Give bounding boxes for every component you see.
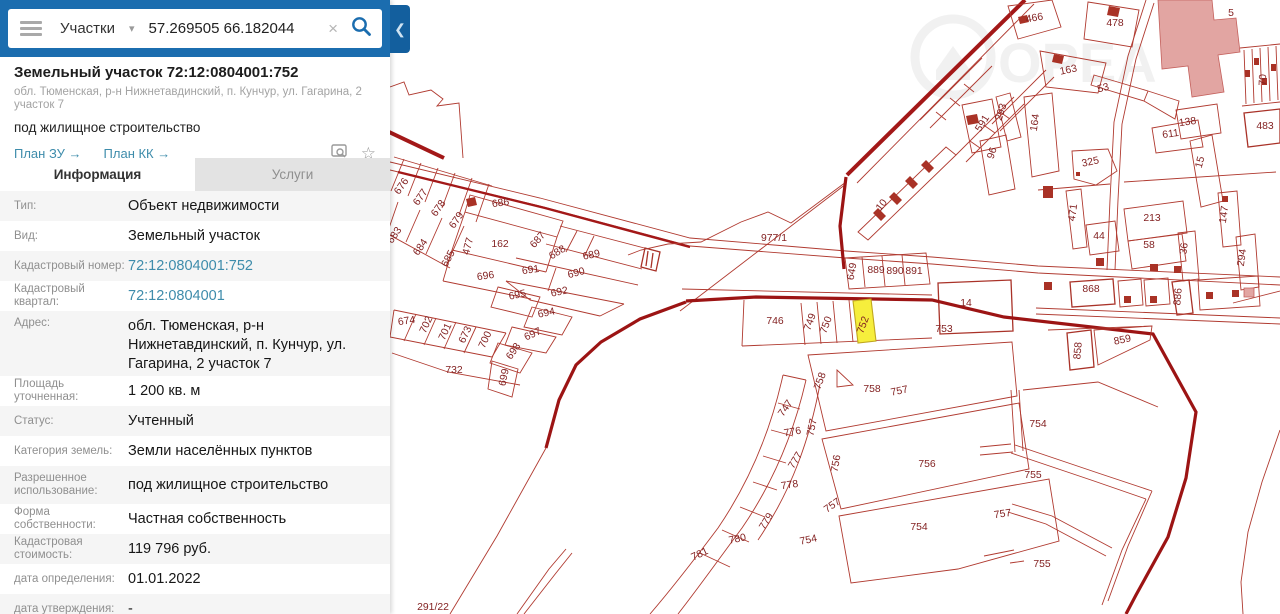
parcel-lines-south xyxy=(650,291,1280,614)
row-value: 119 796 руб. xyxy=(128,540,219,559)
parcel-label-777: 777 xyxy=(787,450,806,471)
tab-bar: Информация Услуги xyxy=(0,158,390,191)
table-row: Тип:Объект недвижимости xyxy=(0,191,390,221)
parcel-label-732: 732 xyxy=(445,365,463,376)
parcel-label-757: 757 xyxy=(993,508,1012,521)
table-row: Площадь уточненная:1 200 кв. м xyxy=(0,376,390,406)
parcel-label-478: 478 xyxy=(1106,18,1124,29)
parcel-label-858: 858 xyxy=(1072,341,1084,359)
table-row: Статус:Учтенный xyxy=(0,406,390,436)
row-value: - xyxy=(128,600,141,614)
parcel-label-162: 162 xyxy=(491,239,509,250)
parcel-label-977-1: 977/1 xyxy=(761,233,787,244)
parcel-label-36: 36 xyxy=(1178,242,1191,255)
search-category-select[interactable]: Участки xyxy=(60,20,115,37)
parcel-label-694: 694 xyxy=(537,306,556,320)
parcel-summary: Земельный участок 72:12:0804001:752 обл.… xyxy=(0,57,390,162)
row-label: Кадастровый квартал: xyxy=(0,283,128,309)
search-input[interactable]: 57.269505 66.182044 xyxy=(149,20,329,37)
parcel-label-471: 471 xyxy=(1067,203,1080,222)
road-southwest xyxy=(517,549,572,614)
parcel-label-325: 325 xyxy=(1081,155,1100,169)
parcel-label-750: 750 xyxy=(819,315,835,335)
parcel-label-293: 293 xyxy=(994,102,1010,122)
parcel-label-754: 754 xyxy=(910,522,928,533)
parcel-label-780: 780 xyxy=(728,532,747,546)
row-value-link[interactable]: 72:12:0804001 xyxy=(128,287,233,306)
row-label: Тип: xyxy=(0,200,128,213)
parcel-label-649: 649 xyxy=(846,262,860,281)
row-value: обл. Тюменская, р-н Нижнетавдинский, п. … xyxy=(128,317,390,374)
parcel-label-70: 70 xyxy=(1258,74,1269,86)
row-label: Кадастровый номер: xyxy=(0,260,128,273)
parcel-label-673: 673 xyxy=(457,325,474,346)
parcel-label-749: 749 xyxy=(803,312,819,332)
parcel-label-689: 689 xyxy=(582,248,601,262)
parcel-label-294: 294 xyxy=(1236,248,1249,267)
parcel-label-868: 868 xyxy=(1082,284,1100,295)
parcel-label-688: 688 xyxy=(547,244,568,263)
table-row: Категория земель:Земли населённых пункто… xyxy=(0,436,390,466)
table-row: Кадастровый номер:72:12:0804001:752 xyxy=(0,251,390,281)
parcel-label-891: 891 xyxy=(905,266,923,277)
parcel-label-753: 753 xyxy=(935,324,953,335)
parcel-label-611: 611 xyxy=(1162,128,1180,141)
row-label: Адрес: xyxy=(0,317,128,330)
parcel-label-757: 757 xyxy=(805,418,819,437)
table-row: Кадастровый квартал:72:12:0804001 xyxy=(0,281,390,311)
parcel-label-886: 886 xyxy=(1172,287,1184,305)
parcel-label-291-22: 291/22 xyxy=(417,602,449,613)
row-value: Учтенный xyxy=(128,412,202,431)
parcel-label-757: 757 xyxy=(822,496,843,515)
row-label: дата утверждения: xyxy=(0,603,128,614)
row-label: Статус: xyxy=(0,415,128,428)
parcel-label-890: 890 xyxy=(886,266,904,277)
parcel-label-754: 754 xyxy=(1029,419,1047,430)
parcel-label-700: 700 xyxy=(477,330,494,351)
table-row: дата утверждения:- xyxy=(0,594,390,614)
table-row: дата определения:01.01.2022 xyxy=(0,564,390,594)
table-row: Кадастровая стоимость:119 796 руб. xyxy=(0,534,390,564)
parcel-label-756: 756 xyxy=(918,459,936,470)
parcel-label-684: 684 xyxy=(411,237,430,258)
watermark-logo: ОРЕА xyxy=(915,19,1157,95)
row-label: дата определения: xyxy=(0,573,128,586)
parcel-label-754: 754 xyxy=(799,533,818,547)
parcel-label-757: 757 xyxy=(890,384,909,398)
parcel-label-683: 683 xyxy=(390,225,405,246)
chevron-down-icon[interactable]: ▾ xyxy=(129,22,135,35)
parcel-label-859: 859 xyxy=(1113,333,1132,347)
parcel-label-692: 692 xyxy=(550,285,569,299)
map-canvas[interactable]: ОРЕА xyxy=(390,0,1280,614)
parcel-labels: 6766776786794776866836846851626876886896… xyxy=(390,8,1274,613)
parcel-label-677: 677 xyxy=(411,187,430,208)
parcel-label-213: 213 xyxy=(1143,213,1161,224)
parcel-label-687: 687 xyxy=(528,230,548,250)
parcel-label-15: 15 xyxy=(1194,155,1208,169)
parcel-label-58: 58 xyxy=(1143,240,1155,251)
row-value: Частная собственность xyxy=(128,510,294,529)
parcel-label-758: 758 xyxy=(863,384,881,395)
table-row: Адрес:обл. Тюменская, р-н Нижнетавдински… xyxy=(0,311,390,376)
parcel-label-44: 44 xyxy=(1093,231,1105,242)
parcel-label-747: 747 xyxy=(776,398,795,419)
parcel-label-696: 696 xyxy=(476,270,495,283)
parcel-label-778: 778 xyxy=(780,479,799,492)
menu-icon[interactable] xyxy=(20,21,42,36)
parcel-label-699: 699 xyxy=(497,368,511,387)
page-title: Земельный участок 72:12:0804001:752 xyxy=(14,64,376,81)
parcel-label-776: 776 xyxy=(783,426,802,440)
search-icon[interactable] xyxy=(350,15,372,42)
parcel-label-686: 686 xyxy=(491,197,510,210)
parcel-label-698: 698 xyxy=(504,341,523,362)
collapse-panel-button[interactable]: ❮ xyxy=(390,5,410,53)
search-box: Участки ▾ 57.269505 66.182044 × xyxy=(8,9,382,48)
parcel-label-758: 758 xyxy=(813,371,829,391)
parcel-label-755: 755 xyxy=(1033,559,1051,570)
search-header: Участки ▾ 57.269505 66.182044 × xyxy=(0,0,390,57)
map-svg[interactable]: ОРЕА xyxy=(390,0,1280,614)
parcel-label-674: 674 xyxy=(397,315,416,328)
row-value: Объект недвижимости xyxy=(128,197,287,216)
parcel-label-755: 755 xyxy=(1024,470,1042,481)
row-label: Форма собственности: xyxy=(0,506,128,532)
clear-search-icon[interactable]: × xyxy=(328,19,338,39)
row-value: Земли населённых пунктов xyxy=(128,442,320,461)
info-table: Тип:Объект недвижимостиВид:Земельный уча… xyxy=(0,191,390,614)
cadastral-map-app: ОРЕА xyxy=(0,0,1280,614)
table-row: Разрешенное использование:под жилищное с… xyxy=(0,466,390,504)
quarter-boundary-west xyxy=(546,302,686,448)
row-value: 01.01.2022 xyxy=(128,570,209,589)
parcel-label-746: 746 xyxy=(766,316,784,327)
row-label: Разрешенное использование: xyxy=(0,472,128,498)
parcel-label-14: 14 xyxy=(960,298,972,309)
parcel-label-138: 138 xyxy=(1178,116,1197,129)
parcel-label-477: 477 xyxy=(461,236,476,256)
table-row: Вид:Земельный участок xyxy=(0,221,390,251)
parcel-label-889: 889 xyxy=(867,265,885,276)
parcel-label-483: 483 xyxy=(1256,121,1274,132)
row-value: под жилищное строительство xyxy=(128,476,336,495)
row-value: 1 200 кв. м xyxy=(128,382,208,401)
parcel-label-695: 695 xyxy=(508,288,527,302)
parcel-label-691: 691 xyxy=(521,264,540,277)
row-label: Кадастровая стоимость: xyxy=(0,536,128,562)
parcel-label-685: 685 xyxy=(440,248,458,269)
parcel-label-5: 5 xyxy=(1228,8,1234,19)
info-sidebar: Участки ▾ 57.269505 66.182044 × Земельны… xyxy=(0,0,390,614)
parcel-address-subtitle: обл. Тюменская, р-н Нижнетавдинский, п. … xyxy=(14,86,376,112)
parcel-label-147: 147 xyxy=(1218,205,1231,224)
boundary-tail xyxy=(450,448,546,614)
row-value-link[interactable]: 72:12:0804001:752 xyxy=(128,257,261,276)
parcel-label-781: 781 xyxy=(690,546,711,563)
tab-services[interactable]: Услуги xyxy=(195,158,390,191)
parcel-label-690: 690 xyxy=(567,266,587,281)
parcel-label-697: 697 xyxy=(523,326,544,343)
parcel-label-164: 164 xyxy=(1029,113,1042,132)
row-label: Категория земель: xyxy=(0,445,128,458)
row-label: Вид: xyxy=(0,230,128,243)
permitted-use-text: под жилищное строительство xyxy=(14,120,376,135)
row-label: Площадь уточненная: xyxy=(0,378,128,404)
parcel-label-466: 466 xyxy=(1025,12,1044,26)
parcel-label-678: 678 xyxy=(429,198,448,219)
table-row: Форма собственности:Частная собственност… xyxy=(0,504,390,534)
row-value: Земельный участок xyxy=(128,227,268,246)
tab-information[interactable]: Информация xyxy=(0,158,195,191)
parcel-label-756: 756 xyxy=(830,454,844,473)
